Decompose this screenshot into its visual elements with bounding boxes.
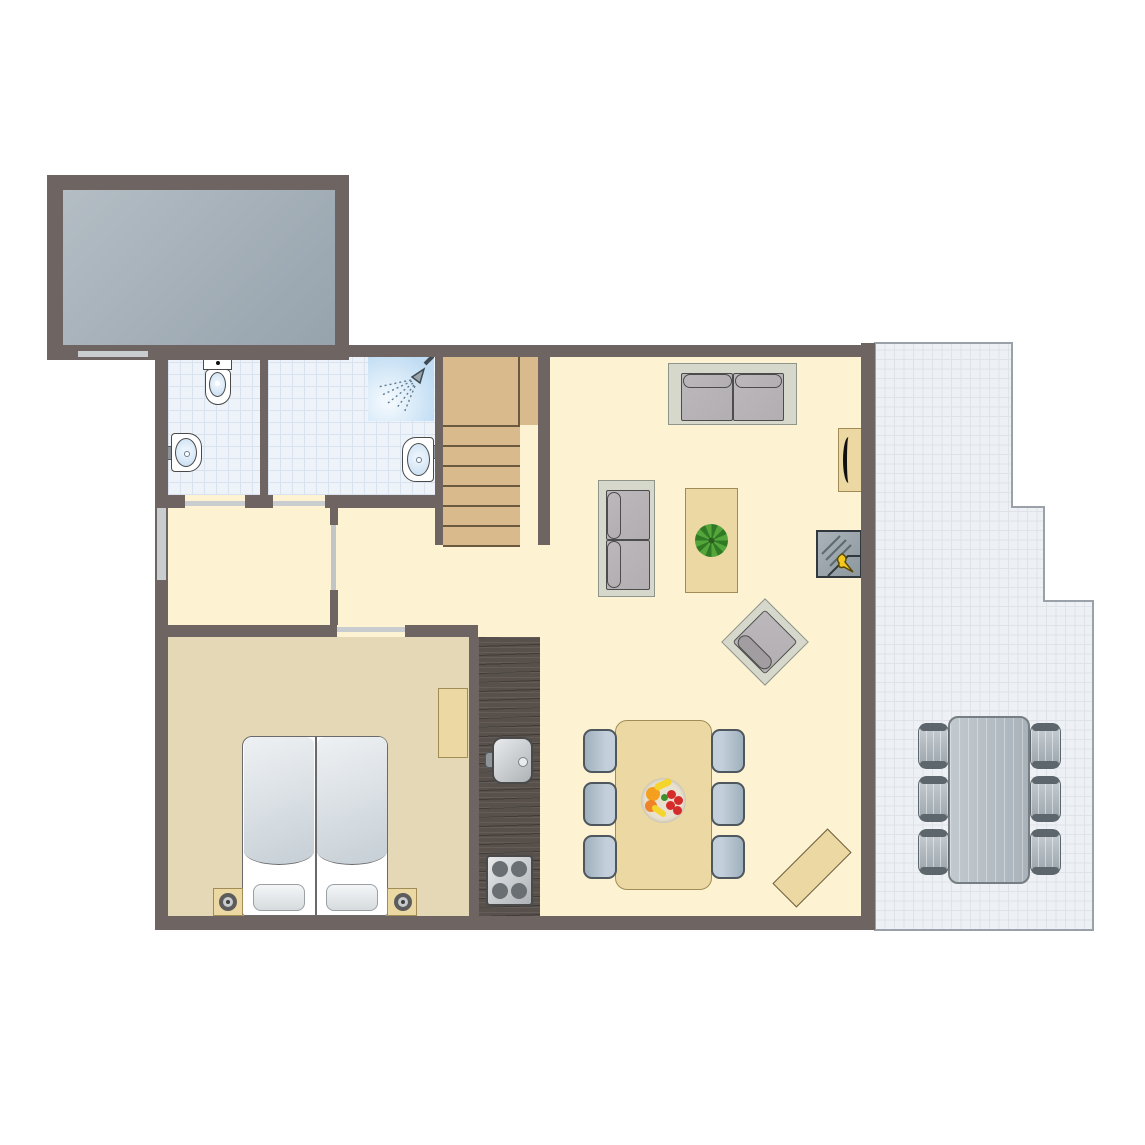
hall-door — [331, 525, 336, 590]
fruit-berry — [673, 806, 682, 815]
wall-right — [861, 343, 875, 930]
nightstand-left — [213, 888, 243, 916]
kitchen-sink — [492, 737, 533, 784]
stair-landing — [443, 355, 538, 425]
stair-landing-divider — [518, 355, 520, 425]
washbasin-large — [402, 437, 434, 482]
dining-chair — [711, 729, 745, 773]
sofa-back-cushion — [607, 541, 621, 588]
washbasin-drain — [184, 451, 190, 457]
sofa-back-cushion — [683, 374, 732, 388]
shower — [368, 357, 434, 421]
carport-floor — [63, 190, 335, 345]
fruit-berry — [674, 796, 683, 805]
dining-chair — [583, 835, 617, 879]
bed-blanket-right — [317, 737, 387, 865]
toilet-button — [216, 361, 220, 365]
lamp-icon — [394, 893, 412, 911]
bathroom-small-door — [185, 501, 245, 506]
bed-pillow-left — [253, 884, 305, 911]
wall-bathroom-bottom — [245, 495, 273, 508]
wall-bedroom-top — [155, 625, 337, 637]
dining-chair — [711, 835, 745, 879]
bathroom-large-door — [273, 501, 325, 506]
outdoor-chair — [1030, 723, 1061, 769]
entry-door — [157, 508, 166, 580]
fireplace — [816, 530, 862, 578]
kitchen-stove — [486, 855, 533, 906]
shower-head-icon — [368, 357, 434, 421]
floorplan — [0, 0, 1145, 1145]
wall-bottom — [155, 916, 875, 930]
sofa-small — [598, 480, 655, 597]
wall-kitchen-separator — [469, 637, 479, 916]
terrace — [875, 343, 1093, 930]
bed-blanket-left — [244, 737, 314, 865]
sofa-back-cushion — [607, 492, 621, 539]
washbasin-drain — [416, 457, 422, 463]
outdoor-chair — [918, 829, 949, 875]
flame-icon — [818, 532, 860, 576]
sofa-back-cushion — [735, 374, 782, 388]
dining-chair — [711, 782, 745, 826]
bedroom-sliding-door — [337, 627, 405, 632]
carport-door — [78, 351, 148, 357]
outdoor-chair — [1030, 776, 1061, 822]
burner-icon — [492, 883, 508, 899]
fruit-bowl-icon — [641, 778, 686, 823]
staircase-steps — [443, 425, 520, 547]
dining-chair — [583, 782, 617, 826]
fruit-leaf — [661, 794, 668, 801]
burner-icon — [511, 861, 527, 877]
dining-chair — [583, 729, 617, 773]
outdoor-chair — [1030, 829, 1061, 875]
plant-icon — [695, 524, 728, 557]
washbasin-small — [171, 433, 202, 472]
tv-icon — [843, 437, 854, 483]
toilet-drain — [215, 381, 220, 386]
lamp-icon — [219, 893, 237, 911]
wall-bedroom-top — [405, 625, 478, 637]
wall-stairs-right — [538, 345, 550, 545]
wall-bathroom-bottom — [155, 495, 185, 508]
nightstand-right — [387, 888, 417, 916]
burner-icon — [511, 883, 527, 899]
wall-stairs-left — [435, 357, 443, 545]
bed-pillow-right — [326, 884, 378, 911]
wall-bathroom-bottom — [325, 495, 443, 508]
outdoor-chair — [918, 776, 949, 822]
fruit-banana — [651, 804, 668, 818]
wall-hall-divider — [330, 590, 338, 625]
wall-left — [155, 345, 168, 930]
burner-icon — [492, 861, 508, 877]
toilet-bowl — [205, 369, 231, 405]
bedroom-desk — [438, 688, 468, 758]
sink-drain — [518, 757, 528, 767]
double-bed — [242, 736, 388, 916]
sofa-large — [668, 363, 797, 425]
outdoor-table — [948, 716, 1030, 884]
outdoor-chair — [918, 723, 949, 769]
wall-bathroom-divider — [260, 357, 268, 495]
wall-hall-divider — [330, 508, 338, 525]
